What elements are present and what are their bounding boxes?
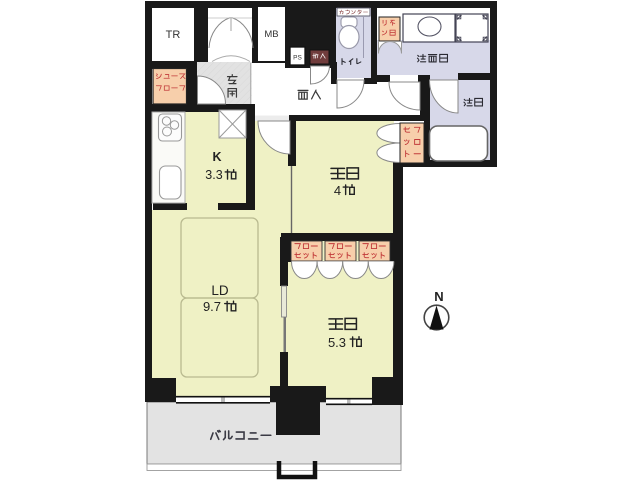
svg-text:5.3: 5.3 bbox=[328, 335, 346, 350]
svg-text:PS: PS bbox=[293, 55, 302, 62]
svg-text:K: K bbox=[212, 150, 221, 164]
svg-text:4: 4 bbox=[334, 183, 341, 198]
svg-text:MB: MB bbox=[264, 29, 278, 40]
svg-text:N: N bbox=[434, 289, 443, 304]
svg-text:3.3: 3.3 bbox=[205, 168, 222, 182]
svg-text:9.7: 9.7 bbox=[203, 299, 221, 314]
svg-text:TR: TR bbox=[166, 29, 181, 41]
svg-text:LD: LD bbox=[211, 283, 229, 298]
